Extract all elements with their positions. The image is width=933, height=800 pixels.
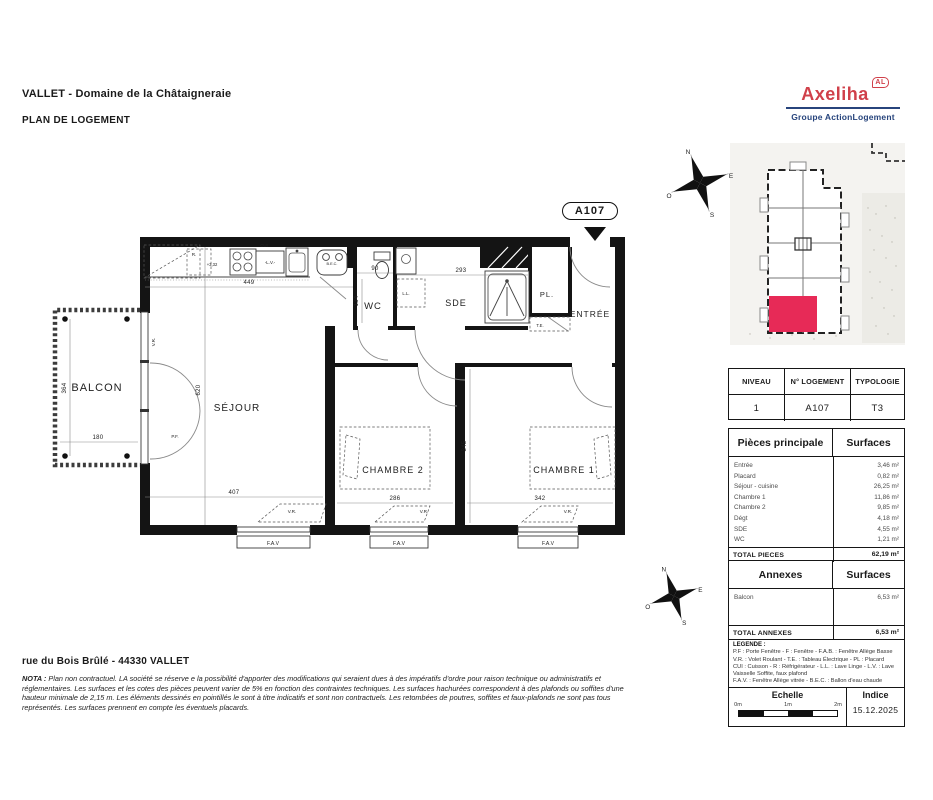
windows [140, 312, 578, 532]
row-value: 4,18 m² [834, 514, 904, 525]
scale-tick-1: 1m [784, 702, 792, 708]
row-value: 26,25 m² [834, 482, 904, 493]
svg-text:134: 134 [354, 295, 360, 306]
svg-text:V.R.: V.R. [151, 338, 156, 347]
row-value: 9,85 m² [834, 503, 904, 514]
svg-text:P.F.: P.F. [171, 434, 178, 439]
svg-text:V.R.: V.R. [288, 509, 297, 514]
svg-text:S: S [682, 620, 686, 627]
room-label-sejour: SÉJOUR [214, 401, 261, 414]
legend-line: F.A.V. : Fenêtre Allège vitrée - B.E.C. … [733, 678, 882, 684]
svg-text:180: 180 [93, 435, 104, 441]
indice-title: Indice [847, 688, 904, 700]
scale-tick-2: 2m [834, 702, 842, 708]
site-address: rue du Bois Brûlé - 44330 VALLET [22, 656, 189, 667]
room-label-chambre2: CHAMBRE 2 [362, 465, 424, 475]
annexes-table: Annexes Surfaces Balcon 6,53 m² TOTAL AN… [728, 561, 905, 640]
room-label-chambre1: CHAMBRE 1 [533, 465, 595, 475]
legend-line: Soffite, faux plafond [757, 671, 807, 677]
svg-text:R.: R. [192, 252, 197, 257]
col-header-typologie: TYPOLOGIE [851, 369, 904, 395]
surfaces-col1-header: Pièces principale [729, 429, 833, 456]
svg-text:407: 407 [229, 490, 240, 496]
scale-indice-box: Echelle 0m 1m 2m Indice 15.12.2025 [728, 688, 905, 727]
room-label-pl: PL. [540, 290, 554, 299]
project-title: VALLET - Domaine de la Châtaigneraie [22, 88, 231, 100]
svg-text:L.L.: L.L. [402, 291, 409, 296]
total-annexes-label: TOTAL ANNEXES [729, 630, 833, 637]
row-label: Séjour - cuisine [729, 482, 833, 493]
svg-text:O: O [666, 193, 671, 200]
row-value: 4,55 m² [834, 525, 904, 536]
svg-text:V.R.: V.R. [420, 509, 429, 514]
fav-window-boxes [237, 536, 578, 548]
row-value: 6,53 m² [834, 593, 904, 604]
outer-walls [140, 237, 625, 535]
indice-date: 15.12.2025 [847, 705, 904, 715]
svg-text:B.E.C.: B.E.C. [327, 262, 338, 266]
col-header-logement: N° LOGEMENT [785, 369, 851, 395]
room-label-balcon: BALCON [71, 382, 122, 394]
legend-box: LEGENDE : P.F : Porte Fenêtre - F : Fenê… [728, 640, 905, 688]
logo-rule [786, 107, 900, 109]
scale-title: Echelle [729, 688, 846, 700]
svg-text:E: E [698, 587, 702, 594]
row-value: 11,86 m² [834, 493, 904, 504]
nota-text: Plan non contractuel. LA société se rése… [22, 674, 624, 712]
site-key-plan: N E O S [640, 138, 905, 348]
total-annexes-value: 6,53 m² [833, 626, 904, 640]
legend-title: LEGENDE : [733, 642, 766, 648]
scale-cell: Echelle 0m 1m 2m [729, 688, 847, 726]
row-value: 3,46 m² [834, 461, 904, 472]
compass-rose-2-icon: N E O S [636, 556, 716, 640]
col-header-niveau: NIVEAU [729, 369, 785, 395]
svg-text:F.A.V: F.A.V [267, 541, 280, 547]
svg-text:T.E.: T.E. [536, 323, 543, 328]
room-names-column: Entrée Placard Séjour - cuisine Chambre … [729, 457, 833, 547]
surfaces-table: Pièces principale Surfaces Entrée Placar… [728, 428, 905, 561]
surfaces-col2-header: Surfaces [833, 429, 904, 456]
row-label: Balcon [729, 593, 833, 604]
site-building [760, 162, 849, 333]
scale-bar: 0m 1m 2m [738, 702, 838, 717]
legend-line: V.R. : Volet Roulant - T.E. : Tableau Él… [733, 657, 884, 663]
floor-plan: 449 620 407 90 293 134 286 342 345 364 1… [40, 195, 660, 560]
kitchen-fixtures [144, 245, 347, 280]
annexes-col2-header: Surfaces [833, 561, 904, 588]
logo-subtitle: Groupe ActionLogement [780, 112, 906, 122]
svg-text:345: 345 [462, 440, 468, 451]
title-block: NIVEAU N° LOGEMENT TYPOLOGIE 1 A107 T3 P… [728, 368, 905, 727]
svg-text:N: N [686, 149, 691, 156]
total-pieces-value: 62,19 m² [833, 548, 904, 562]
svg-text:342: 342 [535, 496, 546, 502]
scale-tick-0: 0m [734, 702, 742, 708]
svg-text:90: 90 [371, 266, 379, 272]
svg-text:O: O [645, 604, 650, 611]
annexes-values-column: 6,53 m² [833, 589, 904, 625]
svg-text:364: 364 [62, 382, 68, 393]
value-typologie: T3 [851, 395, 904, 421]
row-label: Chambre 1 [729, 493, 833, 504]
row-label: Chambre 2 [729, 503, 833, 514]
row-label: Dégt [729, 514, 833, 525]
total-pieces-label: TOTAL PIECES [729, 552, 833, 559]
nota-disclaimer: NOTA : Plan non contractuel. LA société … [22, 674, 642, 713]
svg-text:449: 449 [244, 280, 255, 286]
nota-label: NOTA : [22, 674, 46, 683]
svg-text:F.A.V: F.A.V [542, 541, 555, 547]
unit-info-table: NIVEAU N° LOGEMENT TYPOLOGIE 1 A107 T3 [728, 368, 905, 420]
svg-text:F.A.V: F.A.V [393, 541, 406, 547]
room-label-wc: WC [364, 301, 382, 312]
row-value: 1,21 m² [834, 535, 904, 546]
row-label: Placard [729, 472, 833, 483]
annexes-col1-header: Annexes [729, 561, 833, 588]
value-niveau: 1 [729, 395, 785, 421]
indice-cell: Indice 15.12.2025 [847, 688, 904, 726]
axeliha-logo: AxelihaAL Groupe ActionLogement [780, 84, 906, 122]
plan-sheet: VALLET - Domaine de la Châtaigneraie PLA… [0, 0, 933, 800]
svg-text:-L.V.-: -L.V.- [265, 260, 276, 265]
svg-text:CUI: CUI [260, 243, 268, 248]
svg-text:V.R.: V.R. [564, 509, 573, 514]
row-label: WC [729, 535, 833, 546]
svg-text:293: 293 [456, 268, 467, 274]
svg-text:286: 286 [390, 496, 401, 502]
value-logement: A107 [785, 395, 851, 421]
document-type: PLAN DE LOGEMENT [22, 115, 130, 126]
compass-rose-icon: N E O S [662, 145, 738, 221]
surfaces-values-column: 3,46 m² 0,82 m² 26,25 m² 11,86 m² 9,85 m… [833, 457, 904, 547]
room-label-sde: SDE [445, 298, 467, 308]
svg-text:N: N [662, 566, 667, 573]
svg-text:+3,32: +3,32 [207, 262, 218, 267]
row-label: SDE [729, 525, 833, 536]
row-value: 0,82 m² [834, 472, 904, 483]
legend-line: P.F : Porte Fenêtre - F : Fenêtre - F.A.… [733, 649, 893, 655]
row-label: Entrée [729, 461, 833, 472]
al-badge-icon: AL [872, 77, 888, 88]
svg-text:S: S [710, 212, 715, 219]
room-label-entree: ENTRÉE [570, 309, 610, 319]
svg-text:620: 620 [196, 384, 202, 395]
site-highlighted-unit [769, 296, 817, 332]
brand-name: AxelihaAL [801, 84, 885, 105]
svg-text:E: E [729, 173, 734, 180]
annexes-names-column: Balcon [729, 589, 833, 625]
scale-bar-segments [738, 710, 838, 717]
